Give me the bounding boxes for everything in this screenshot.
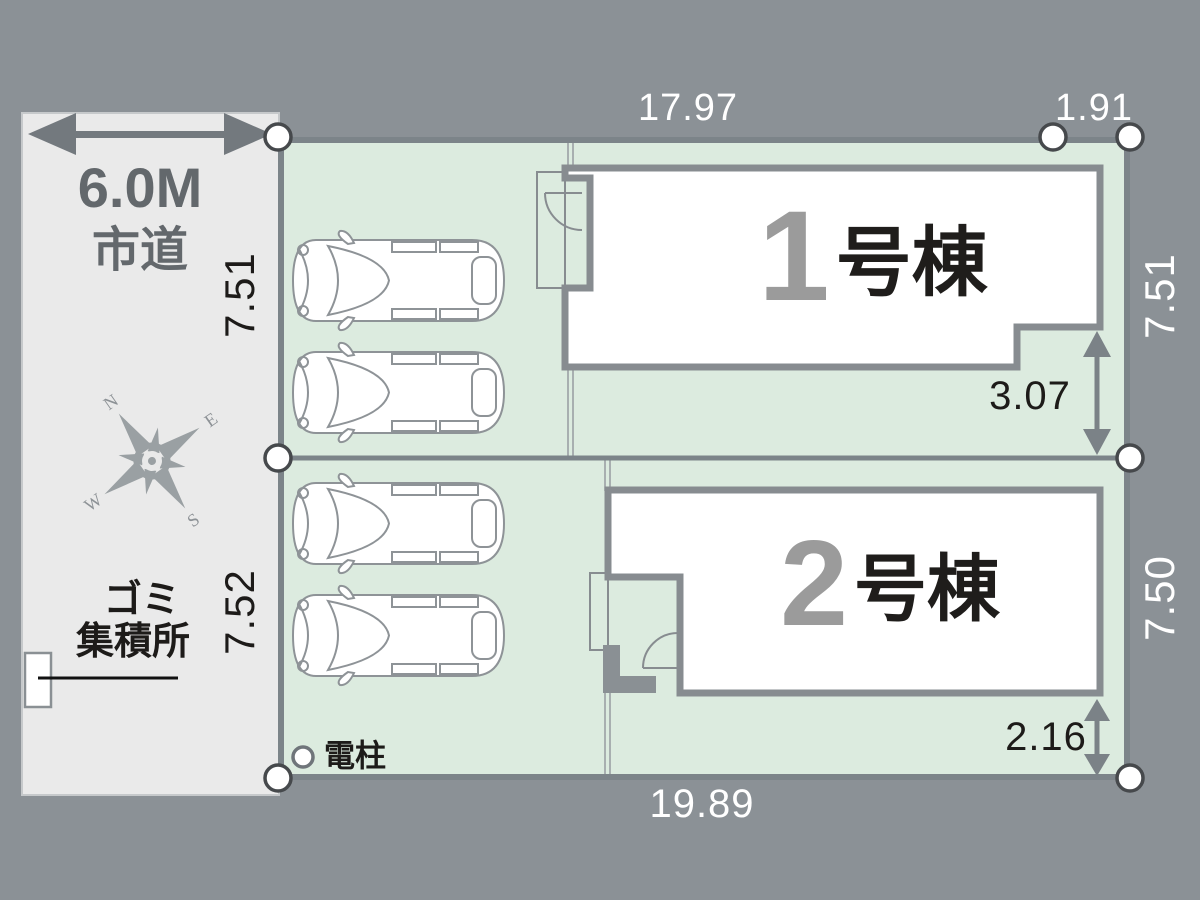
car-4 [293,586,504,685]
dimension-bottom: 19.89 [649,784,754,824]
building-1-number: 1 [758,193,829,321]
car-1 [293,231,504,330]
dimension-right-upper: 7.51 [1139,253,1181,339]
site-plan: N E S W 6.0M 市道 17.97 1.91 7.51 7.52 [0,0,1200,900]
car-2 [293,343,504,442]
dimension-setback-upper: 3.07 [989,376,1071,416]
building-1-suffix: 号棟 [836,226,988,302]
utility-pole-icon [293,747,313,767]
building-1-label: 1 号棟 [728,192,1018,322]
plan-drawing: N E S W [0,0,1200,900]
building-2-number: 2 [780,522,848,644]
car-3 [293,474,504,573]
utility-pole-label: 電柱 [324,741,386,772]
dimension-left-upper: 7.51 [219,252,261,338]
building-2-suffix: 号棟 [854,553,1000,626]
dimension-top-main: 17.97 [638,89,738,127]
dimension-left-lower: 7.52 [219,569,261,655]
garbage-label-line2: 集積所 [76,623,190,661]
garbage-box [25,653,51,707]
dimension-top-right: 1.91 [1055,89,1133,127]
building-2-label: 2 号棟 [770,525,1010,640]
road-type-label: 市道 [92,227,188,275]
dimension-right-lower: 7.50 [1139,555,1181,641]
road-width-label: 6.0M [78,160,203,216]
dimension-setback-lower: 2.16 [1005,717,1087,757]
garbage-label-line1: ゴミ [104,581,180,619]
